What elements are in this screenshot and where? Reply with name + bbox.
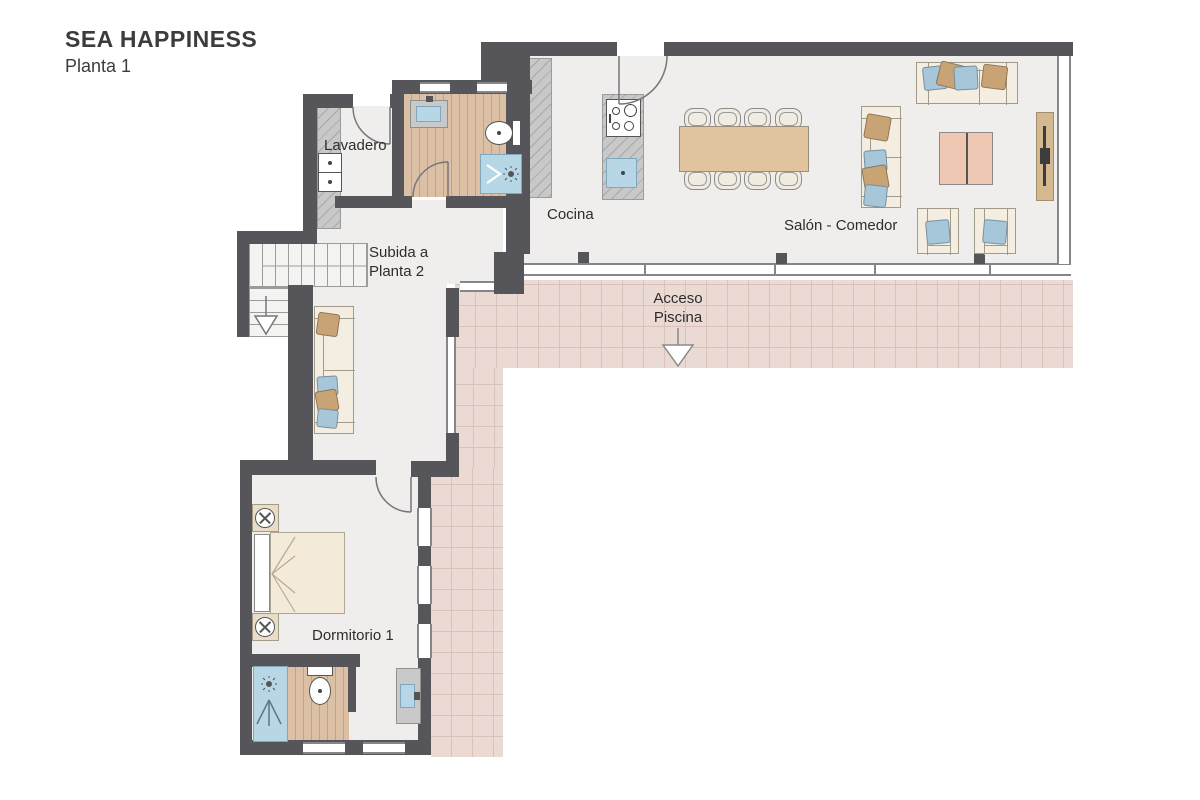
- toilet-2: [305, 666, 335, 708]
- bath1-vanity: [410, 100, 448, 128]
- wall-bedroom-top: [240, 460, 376, 475]
- dining-table: [679, 126, 809, 172]
- wall-bath1-bottom-right: [446, 196, 530, 208]
- bath2-shower: [253, 666, 288, 742]
- toilet: [485, 119, 521, 147]
- wall-connector: [481, 42, 507, 84]
- tv-mount: [1040, 148, 1050, 164]
- bath1-window-1: [420, 82, 450, 93]
- wall-hallway-east-stub1: [446, 288, 459, 337]
- dryer: [318, 172, 342, 192]
- throw-pillow: [981, 64, 1009, 91]
- plan-title: SEA HAPPINESS: [65, 26, 257, 53]
- vestibule-window: [460, 281, 494, 292]
- washer: [318, 153, 342, 173]
- toilet-tank: [512, 120, 521, 146]
- bath1-sink: [416, 106, 441, 122]
- label-stairs-line1: Subida a: [369, 244, 428, 263]
- plan-subtitle: Planta 1: [65, 56, 131, 77]
- burner-icon: [624, 104, 637, 117]
- facade-column: [776, 253, 787, 264]
- stairs-lower-flight: [249, 287, 290, 337]
- wall-bedroom-left: [240, 460, 252, 755]
- washer-door-icon: [328, 161, 332, 165]
- lamp-icon: [255, 617, 275, 637]
- label-bedroom: Dormitorio 1: [312, 627, 394, 646]
- toilet-drain-icon: [497, 131, 501, 135]
- wall-laundry-bottom: [237, 231, 317, 244]
- bath2-window-2: [363, 742, 405, 754]
- burner-icon: [612, 122, 620, 130]
- kitchen-wall-counter: [528, 58, 552, 198]
- burner-icon: [624, 121, 634, 131]
- glass-divider: [989, 263, 991, 276]
- coffee-table: [939, 132, 993, 185]
- label-living-dining: Salón - Comedor: [784, 217, 897, 236]
- cooktop-control: [609, 114, 611, 123]
- wall-hallway-west: [288, 285, 313, 463]
- label-pool-line1: Acceso: [630, 290, 726, 309]
- wall-stairs-outer: [237, 231, 249, 337]
- label-laundry: Lavadero: [324, 137, 387, 156]
- throw-pillow: [863, 113, 892, 142]
- floor-plan: SEA HAPPINESS Planta 1 Lavadero Cocina S…: [0, 0, 1200, 800]
- label-pool-line2: Piscina: [630, 309, 726, 328]
- bath2-faucet: [414, 692, 420, 700]
- facade-column: [578, 252, 589, 263]
- bath2-sink: [400, 684, 415, 708]
- wall-bath2-partition: [348, 666, 356, 712]
- wall-top-right: [664, 42, 1073, 56]
- toilet2-drain-icon: [318, 689, 322, 693]
- burner-icon: [612, 107, 620, 115]
- glass-divider: [774, 263, 776, 276]
- cooktop: [606, 99, 641, 137]
- wall-living-left: [506, 42, 530, 254]
- bedroom-window-3: [417, 624, 432, 658]
- bath1-window-2: [477, 82, 507, 93]
- bed-mattress: [270, 532, 345, 614]
- label-stairs-line2: Planta 2: [369, 263, 428, 282]
- throw-pillow: [925, 219, 951, 245]
- label-pool-access: Acceso Piscina: [630, 290, 726, 328]
- throw-pillow: [953, 65, 978, 90]
- terrace-tiles-west: [431, 468, 503, 757]
- bedroom-window-2: [417, 566, 432, 604]
- label-kitchen: Cocina: [547, 206, 594, 225]
- throw-pillow: [982, 219, 1008, 245]
- throw-pillow: [316, 408, 339, 429]
- bath2-window-1: [303, 742, 345, 754]
- bedroom-window-1: [417, 508, 432, 546]
- lamp-icon: [255, 508, 275, 528]
- glass-divider: [644, 263, 646, 276]
- glass-divider: [874, 263, 876, 276]
- kitchen-sink: [606, 158, 637, 188]
- throw-pillow: [316, 312, 341, 338]
- terrace-tiles-south: [455, 280, 1073, 368]
- wall-bath1-top: [392, 80, 532, 94]
- bed-headboard: [254, 534, 270, 612]
- wall-bath1-bottom-left: [335, 196, 412, 208]
- throw-pillow: [863, 184, 888, 208]
- faucet-icon: [621, 171, 625, 175]
- bath1-faucet: [426, 96, 433, 102]
- living-east-glass-wall: [1057, 56, 1071, 264]
- corner-pillar: [494, 252, 524, 294]
- stairs-upper-flight: [249, 243, 368, 287]
- dryer-door-icon: [328, 180, 332, 184]
- wall-laundry-left: [303, 94, 317, 234]
- toilet2-tank: [307, 666, 333, 676]
- wall-laundry-bath-divider: [392, 94, 404, 196]
- hallway-window: [446, 337, 456, 433]
- bath1-shower: [480, 154, 522, 194]
- label-stairs: Subida a Planta 2: [369, 244, 428, 282]
- washer-dryer: [318, 153, 342, 193]
- terrace-tiles-corner: [453, 368, 503, 468]
